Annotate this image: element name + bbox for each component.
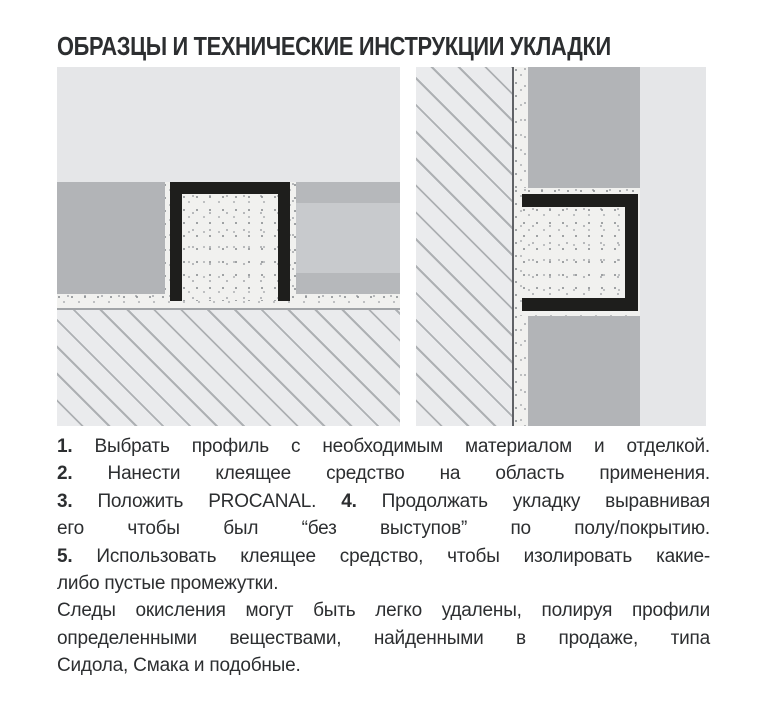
background-area (57, 67, 400, 182)
procanal-profile-channel (522, 194, 638, 311)
instruction-lines: 1. Выбрать профиль с необходимым материа… (57, 433, 710, 680)
substrate-hatch (57, 310, 400, 426)
step-number: 2. (57, 463, 72, 484)
instruction-line: либо пустые промежутки. (57, 570, 710, 597)
instruction-text: Сидола, Смака и подобные. (57, 655, 301, 676)
instruction-text: либо пустые промежутки. (57, 573, 278, 594)
instruction-line: Сидола, Смака и подобные. (57, 652, 710, 679)
instruction-text: Следы окисления могут быть легко удалены… (57, 600, 710, 621)
instruction-text: Продолжать укладку выравнивая (357, 491, 710, 512)
tile-left (57, 182, 165, 294)
instruction-text: Положить PROCANAL. (72, 491, 341, 512)
page-title: ОБРАЗЦЫ И ТЕХНИЧЕСКИЕ ИНСТРУКЦИИ УКЛАДКИ (57, 31, 611, 62)
wall-cross-section-diagram (416, 67, 706, 426)
tile-band-top (296, 182, 400, 203)
instruction-text: определенными веществами, найденными в п… (57, 628, 710, 649)
step-number: 5. (57, 546, 72, 567)
instruction-line: определенными веществами, найденными в п… (57, 625, 710, 652)
instruction-line: 5. Использовать клеящее средство, чтобы … (57, 543, 710, 570)
tile-band-bottom (296, 273, 400, 294)
tile-bottom (528, 316, 640, 426)
instruction-text: Нанести клеящее средство на область прим… (72, 463, 710, 484)
instruction-line: 3. Положить PROCANAL. 4. Продолжать укла… (57, 488, 710, 515)
catalog-page: ОБРАЗЦЫ И ТЕХНИЧЕСКИЕ ИНСТРУКЦИИ УКЛАДКИ… (0, 0, 759, 720)
procanal-profile-channel (170, 182, 290, 301)
instruction-line: 1. Выбрать профиль с необходимым материа… (57, 433, 710, 460)
step-number: 4. (341, 491, 356, 512)
instruction-text: Использовать клеящее средство, чтобы изо… (72, 546, 710, 567)
tile-right (296, 182, 400, 294)
floor-cross-section-diagram (57, 67, 400, 426)
instruction-line: его чтобы был “без выступов” по полу/пок… (57, 515, 710, 542)
background-area (640, 67, 706, 426)
instruction-line: 2. Нанести клеящее средство на область п… (57, 460, 710, 487)
instruction-text: Выбрать профиль с необходимым материалом… (72, 436, 710, 457)
wall-hatch (416, 67, 512, 426)
step-number: 3. (57, 491, 72, 512)
step-number: 1. (57, 436, 72, 457)
tile-top (528, 67, 640, 188)
instruction-line: Следы окисления могут быть легко удалены… (57, 597, 710, 624)
instruction-text: его чтобы был “без выступов” по полу/пок… (57, 518, 710, 539)
